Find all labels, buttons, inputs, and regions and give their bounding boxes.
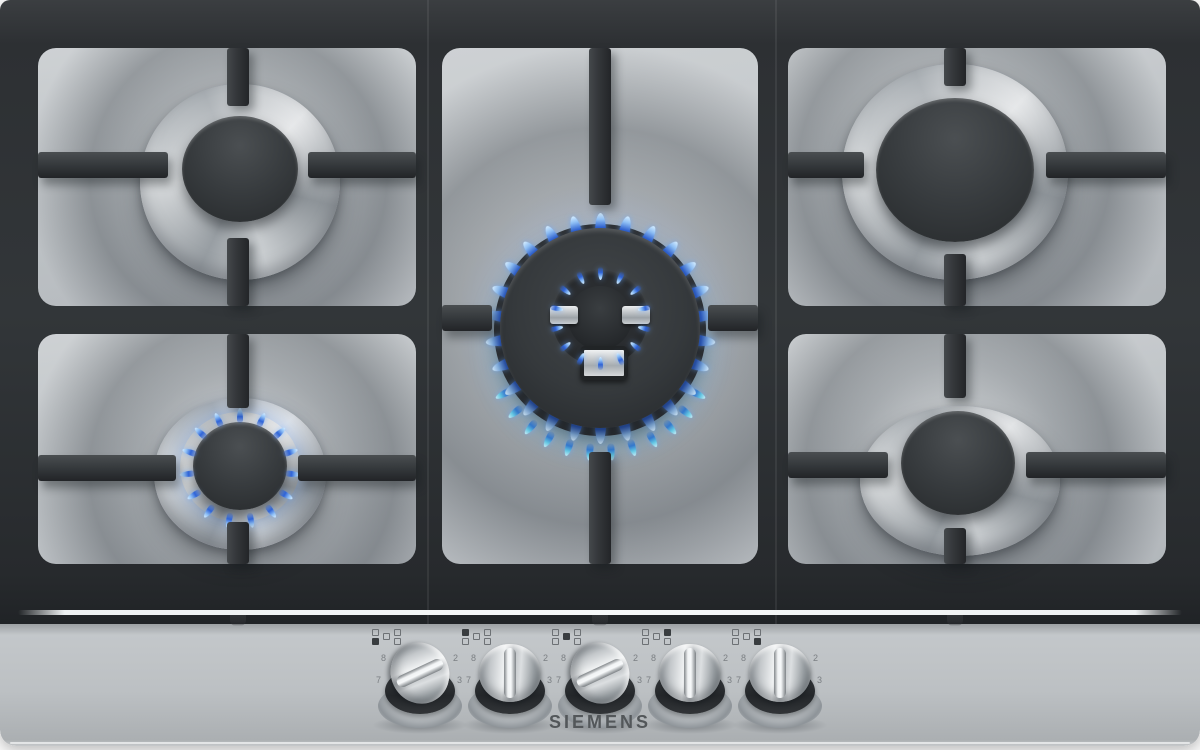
- grate-finger: [788, 152, 864, 178]
- knob-scale-number: 8: [471, 653, 476, 663]
- grate-finger: [38, 152, 168, 178]
- product-photo: 87654328765432876543287654328765432 SIEM…: [0, 0, 1200, 750]
- indicator-square-top-left: [552, 629, 559, 636]
- knob-scale-number: 8: [381, 653, 386, 663]
- panel-bottom-edge: [10, 742, 1190, 744]
- grate-finger: [1026, 452, 1166, 478]
- knob-scale-number: 7: [466, 675, 471, 685]
- grate-finger: [788, 452, 888, 478]
- grate-finger: [944, 254, 966, 306]
- knob-scale-number: 8: [651, 653, 656, 663]
- knob-grip: [575, 657, 625, 689]
- grate-finger: [589, 48, 611, 205]
- grate-finger: [227, 334, 249, 408]
- indicator-square-top-left: [732, 629, 739, 636]
- knob-head[interactable]: [749, 644, 811, 702]
- knob-scale-number: 7: [646, 675, 651, 685]
- grate-finger: [589, 452, 611, 564]
- indicator-square-top-left: [462, 629, 469, 636]
- grate-seam: [775, 0, 777, 624]
- grate-finger: [227, 522, 249, 564]
- indicator-square-bottom-left: [732, 638, 739, 645]
- knob-scale-number: 7: [556, 675, 561, 685]
- indicator-square-center: [653, 633, 660, 640]
- grate-finger: [442, 305, 492, 331]
- burner-cap: [876, 98, 1034, 242]
- indicator-square-top-right: [754, 629, 761, 636]
- gas-flame: [598, 267, 603, 280]
- grate-finger: [38, 455, 176, 481]
- indicator-square-bottom-right: [664, 638, 671, 645]
- knob-grip: [684, 648, 696, 698]
- burner-position-indicator: [732, 629, 762, 646]
- knob-head[interactable]: [479, 644, 541, 702]
- burner-cap: [182, 116, 298, 222]
- indicator-square-bottom-right: [574, 638, 581, 645]
- knob-scale-number: 7: [376, 675, 381, 685]
- knob-head[interactable]: [659, 644, 721, 702]
- siemens-logo: SIEMENS: [0, 712, 1200, 733]
- indicator-square-bottom-right: [754, 638, 761, 645]
- indicator-square-bottom-right: [484, 638, 491, 645]
- knob-grip: [504, 648, 516, 698]
- knob-scale-number: 8: [741, 653, 746, 663]
- indicator-square-top-right: [394, 629, 401, 636]
- indicator-square-top-right: [574, 629, 581, 636]
- grate-finger: [944, 48, 966, 86]
- grate-finger: [944, 334, 966, 398]
- panel-edge-highlight: [18, 610, 1182, 615]
- knob-grip: [774, 648, 786, 698]
- grate-finger: [227, 48, 249, 106]
- indicator-square-bottom-left: [552, 638, 559, 645]
- indicator-square-center: [563, 633, 570, 640]
- burner-center-wok: [450, 178, 750, 478]
- indicator-square-bottom-right: [394, 638, 401, 645]
- control-panel: 87654328765432876543287654328765432 SIEM…: [0, 624, 1200, 746]
- indicator-square-center: [473, 633, 480, 640]
- indicator-square-center: [383, 633, 390, 640]
- indicator-square-bottom-left: [462, 638, 469, 645]
- burner-top-right: [840, 60, 1070, 282]
- grate-finger: [227, 238, 249, 306]
- burner-position-indicator: [372, 629, 402, 646]
- grate-seam: [427, 0, 429, 624]
- knob-scale-number: 7: [736, 675, 741, 685]
- indicator-square-top-right: [664, 629, 671, 636]
- grate-finger: [298, 455, 416, 481]
- grate-finger: [1046, 152, 1166, 178]
- indicator-square-bottom-left: [372, 638, 379, 645]
- indicator-square-top-right: [484, 629, 491, 636]
- indicator-square-top-left: [642, 629, 649, 636]
- grate-finger: [708, 305, 758, 331]
- indicator-square-center: [743, 633, 750, 640]
- knob-scale-number: 2: [813, 653, 818, 663]
- gas-hob: 87654328765432876543287654328765432 SIEM…: [0, 0, 1200, 746]
- burner-position-indicator: [462, 629, 492, 646]
- knob-scale-number: 3: [817, 675, 822, 685]
- gas-flame: [598, 357, 603, 370]
- burner-position-indicator: [642, 629, 672, 646]
- burner-position-indicator: [552, 629, 582, 646]
- cooktop-surface: [0, 0, 1200, 624]
- grate-finger: [944, 528, 966, 564]
- knob-scale-number: 8: [561, 653, 566, 663]
- knob-grip: [395, 657, 445, 689]
- indicator-square-top-left: [372, 629, 379, 636]
- indicator-square-bottom-left: [642, 638, 649, 645]
- grate-finger: [308, 152, 416, 178]
- burner-cap: [901, 411, 1015, 515]
